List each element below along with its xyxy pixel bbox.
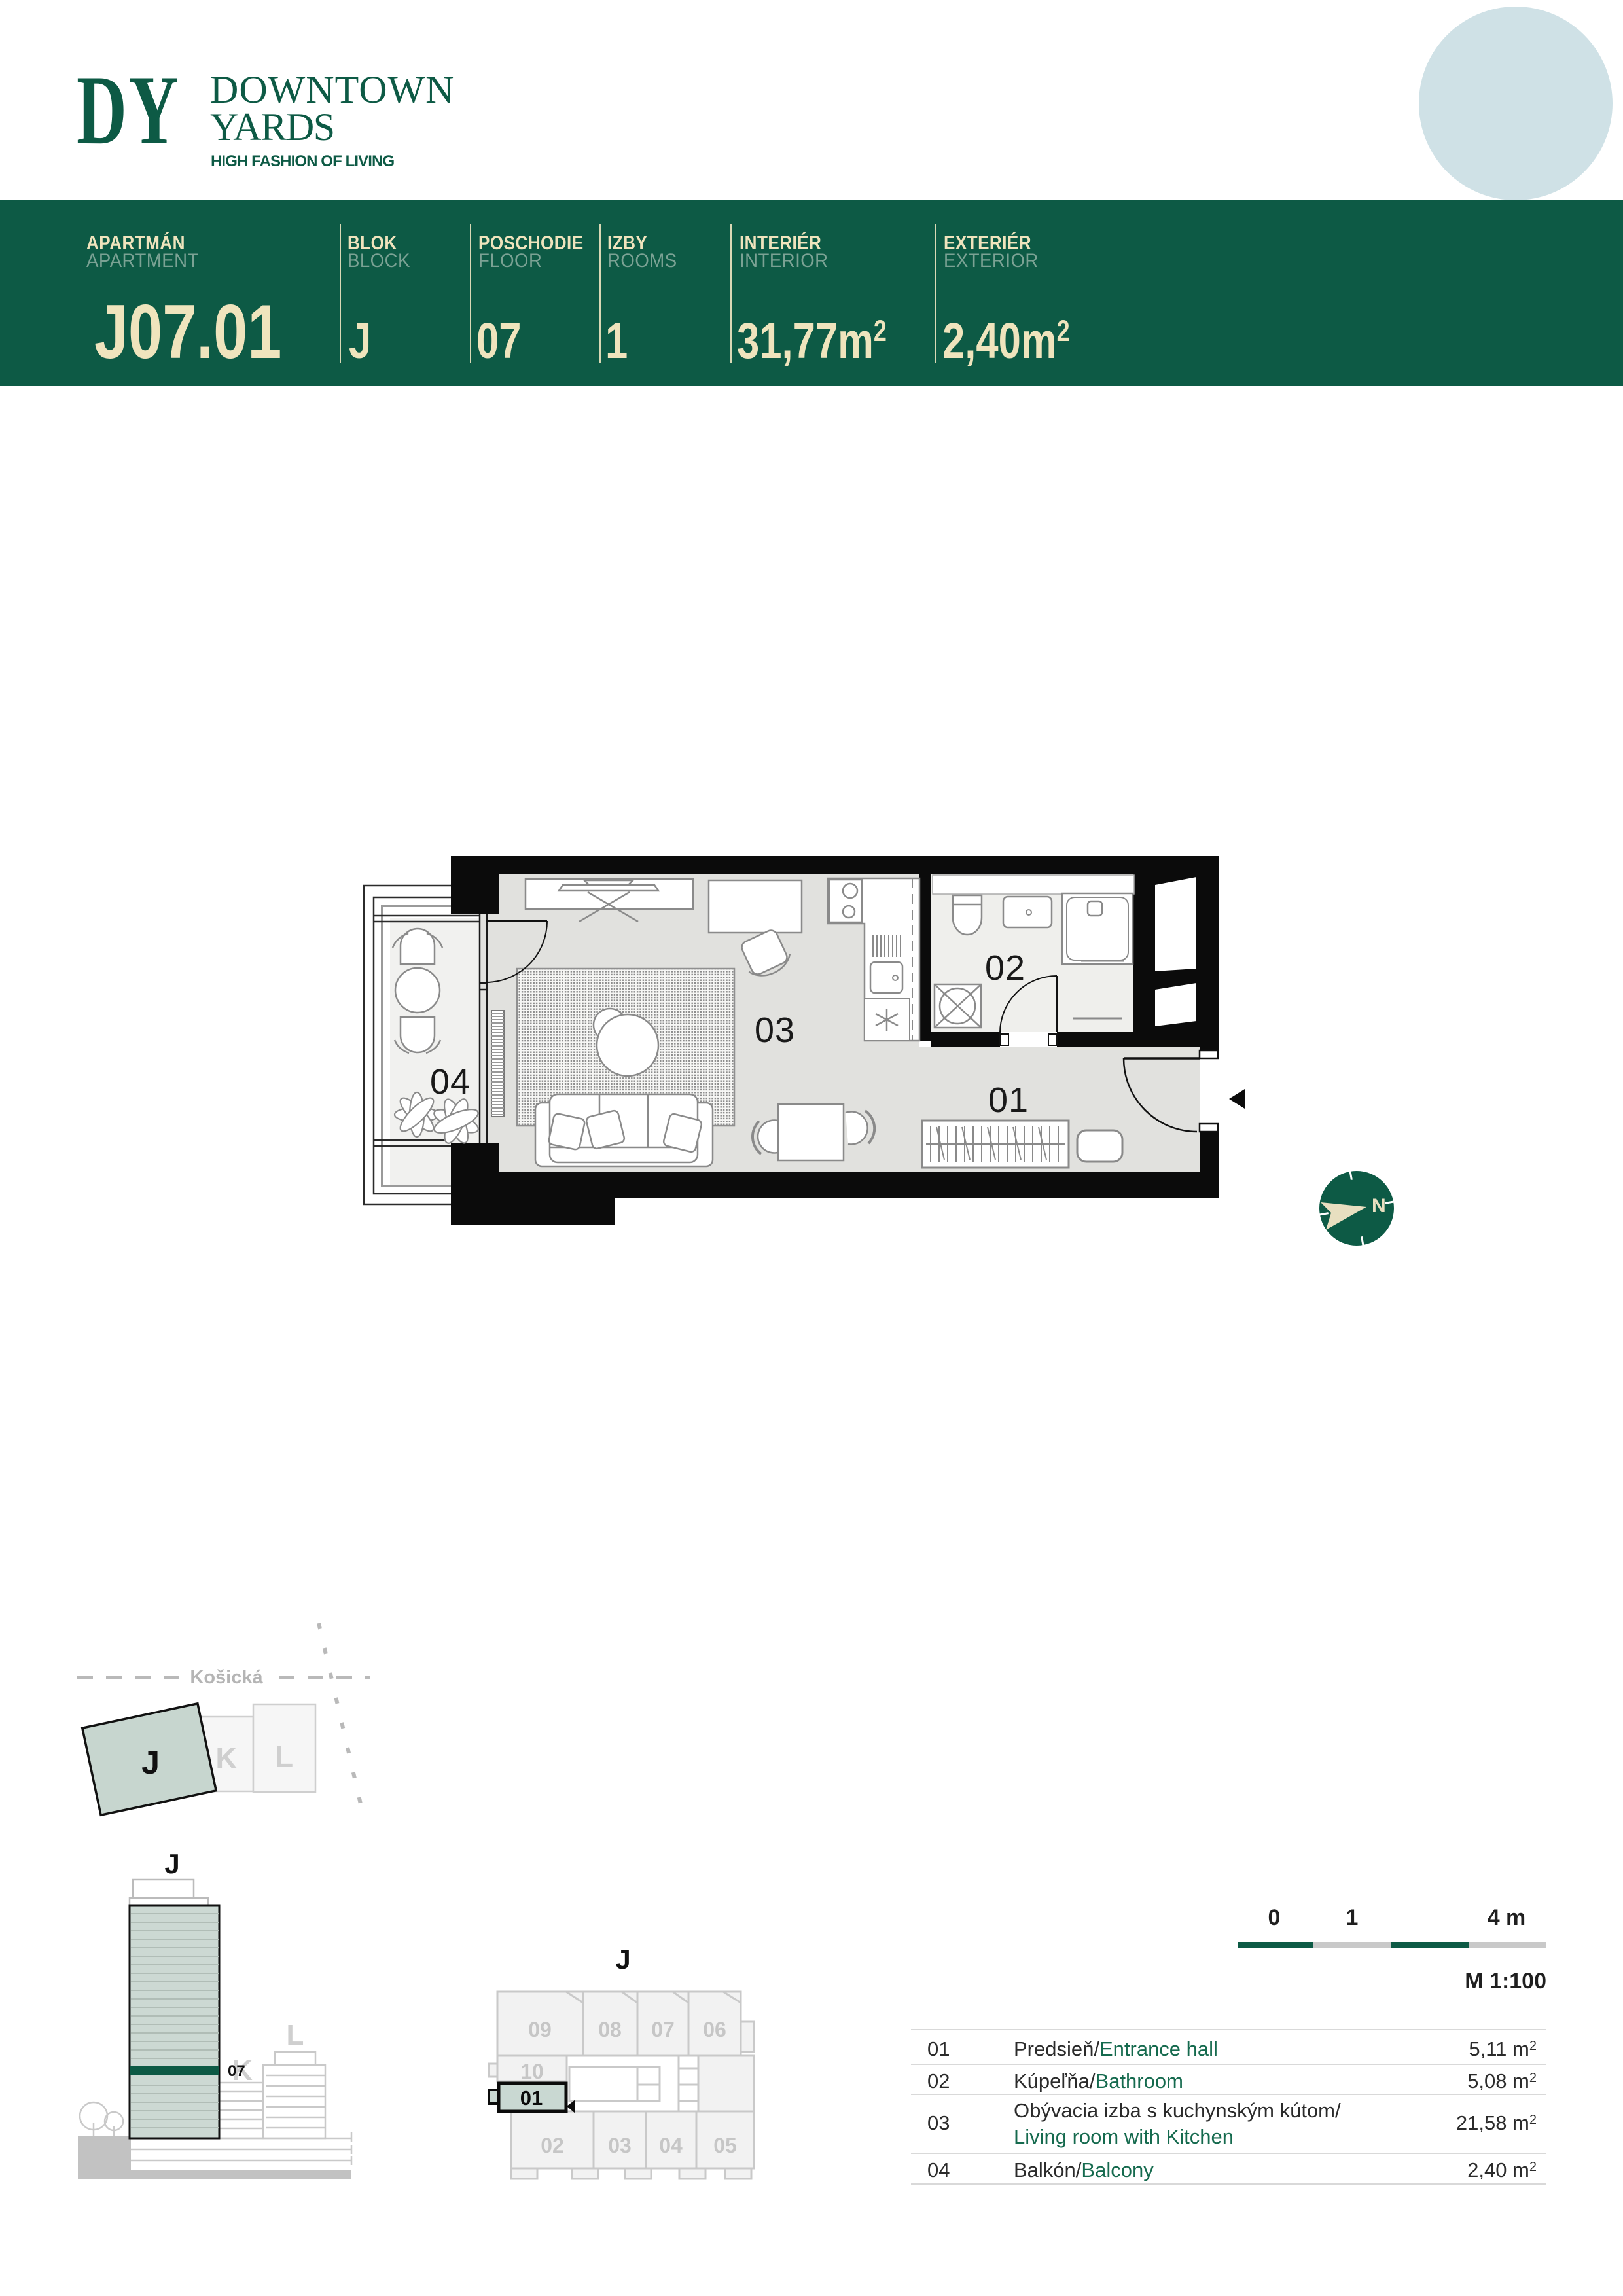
svg-text:04: 04	[659, 2134, 683, 2157]
svg-text:L: L	[275, 1740, 293, 1774]
svg-text:J: J	[615, 1944, 630, 1975]
svg-text:05: 05	[713, 2134, 737, 2157]
svg-text:K: K	[215, 1741, 237, 1775]
svg-text:03: 03	[755, 1011, 795, 1050]
svg-text:01: 01	[520, 2087, 543, 2109]
svg-text:06: 06	[703, 2018, 726, 2041]
svg-text:10: 10	[520, 2060, 544, 2083]
svg-text:07: 07	[651, 2018, 675, 2041]
svg-text:08: 08	[598, 2018, 622, 2041]
svg-text:Košická: Košická	[190, 1667, 263, 1688]
svg-text:01: 01	[988, 1081, 1029, 1120]
svg-text:N: N	[1372, 1195, 1386, 1217]
svg-text:J: J	[141, 1744, 160, 1781]
svg-text:02: 02	[985, 948, 1026, 988]
svg-text:04: 04	[430, 1062, 471, 1102]
svg-text:03: 03	[608, 2134, 632, 2157]
svg-text:J: J	[164, 1848, 179, 1879]
svg-text:L: L	[287, 2019, 304, 2051]
svg-text:02: 02	[541, 2134, 564, 2157]
svg-text:07: 07	[228, 2062, 245, 2080]
svg-text:09: 09	[528, 2018, 552, 2041]
